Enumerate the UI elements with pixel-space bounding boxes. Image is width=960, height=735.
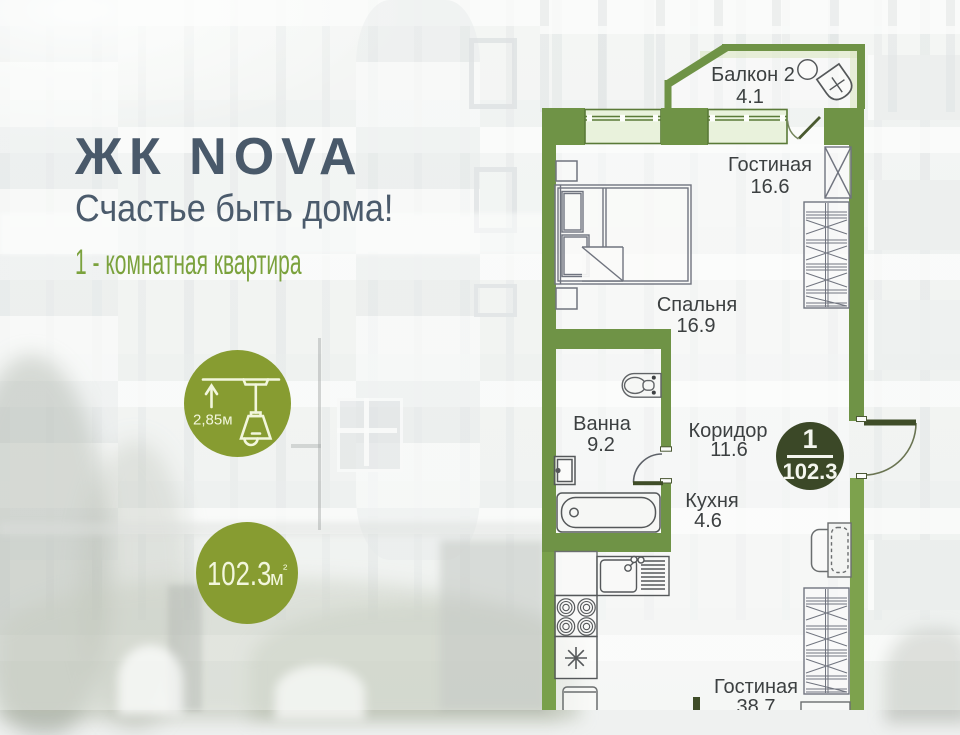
svg-text:Гостиная: Гостиная: [714, 676, 798, 698]
svg-text:9.2: 9.2: [587, 434, 615, 456]
svg-text:4.6: 4.6: [694, 510, 722, 532]
svg-text:Кухня: Кухня: [685, 490, 739, 512]
svg-text:Гостиная: Гостиная: [728, 154, 812, 176]
svg-text:Балкон 2: Балкон 2: [711, 64, 795, 86]
svg-text:11.6: 11.6: [710, 439, 747, 461]
svg-text:102.3: 102.3: [782, 459, 837, 484]
svg-text:16.6: 16.6: [751, 176, 790, 198]
svg-text:1: 1: [802, 424, 817, 454]
svg-text:Спальня: Спальня: [657, 294, 737, 316]
svg-text:4.1: 4.1: [736, 86, 764, 108]
svg-text:38.7: 38.7: [737, 696, 776, 710]
svg-text:16.9: 16.9: [677, 315, 716, 337]
svg-text:Ванна: Ванна: [573, 413, 632, 435]
